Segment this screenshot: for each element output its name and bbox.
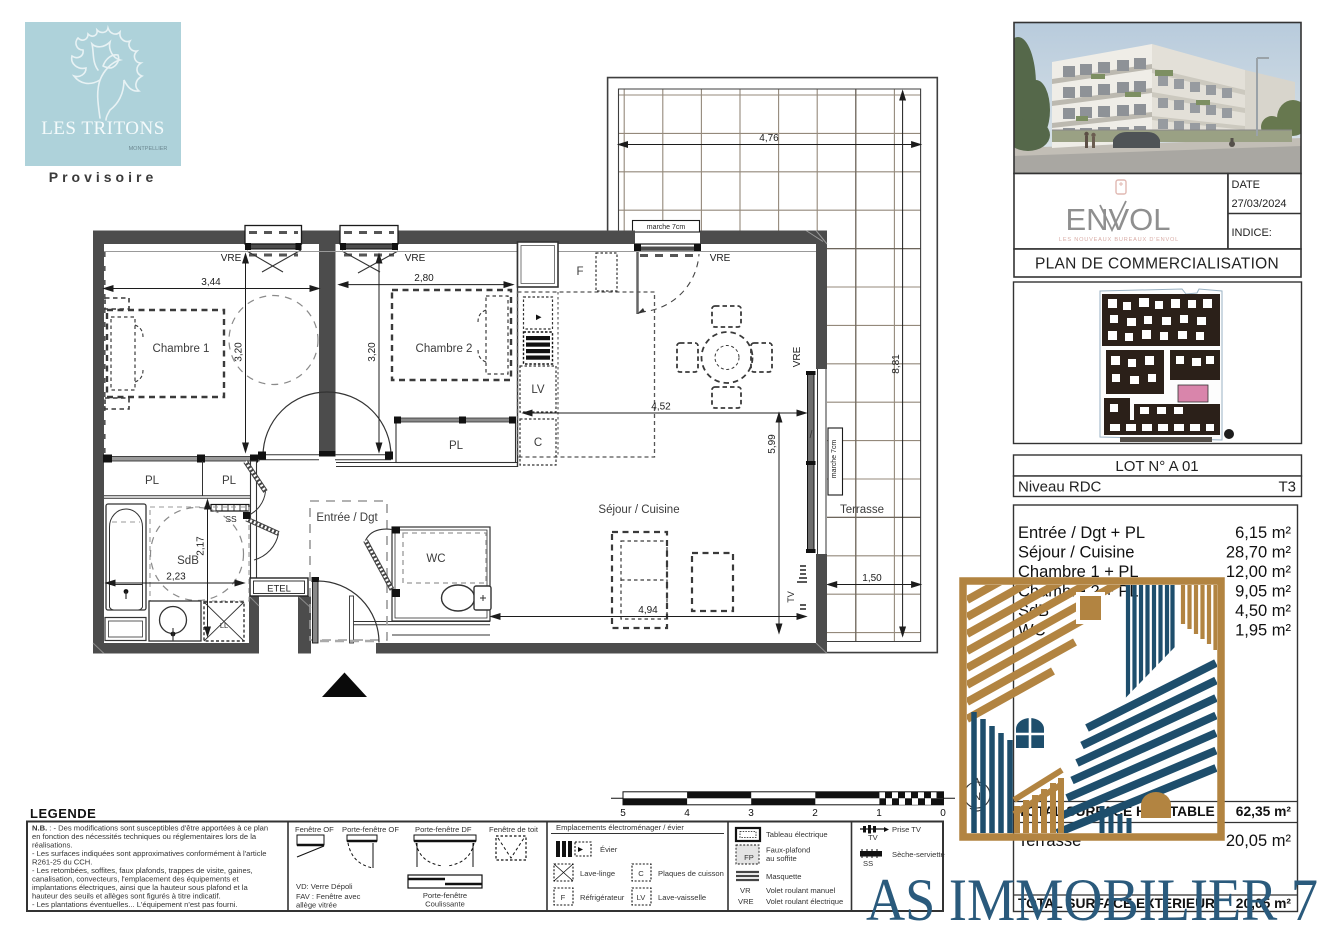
svg-text:3,44: 3,44	[201, 277, 221, 288]
svg-text:VD: Verre Dépoli: VD: Verre Dépoli	[296, 882, 353, 891]
svg-text:4,50 m²: 4,50 m²	[1235, 602, 1291, 620]
svg-text:C: C	[534, 437, 542, 449]
svg-text:VRE: VRE	[405, 253, 426, 264]
svg-text:Évier: Évier	[600, 845, 618, 854]
svg-text:2,17: 2,17	[196, 536, 207, 556]
svg-text:4,52: 4,52	[651, 402, 671, 413]
svg-text:Volet roulant manuel: Volet roulant manuel	[766, 886, 836, 895]
svg-text:27/03/2024: 27/03/2024	[1232, 198, 1287, 210]
svg-text:20,05 m²: 20,05 m²	[1226, 832, 1292, 850]
svg-text:0: 0	[940, 808, 946, 819]
svg-text:ETEL: ETEL	[267, 584, 291, 595]
svg-text:WC: WC	[426, 553, 445, 565]
svg-text:2,80: 2,80	[414, 273, 434, 284]
svg-text:1,95 m²: 1,95 m²	[1235, 622, 1291, 640]
svg-text:Fenêtre de toit: Fenêtre de toit	[489, 825, 539, 834]
svg-text:marche 7cm: marche 7cm	[647, 224, 686, 231]
svg-text:2: 2	[812, 808, 818, 819]
svg-text:Porte-fenêtre DF: Porte-fenêtre DF	[415, 825, 472, 834]
svg-text:Coulissante: Coulissante	[425, 900, 465, 909]
svg-text:9,05 m²: 9,05 m²	[1235, 583, 1291, 601]
svg-text:- Les plantations éventuelles.: - Les plantations éventuelles... L'équip…	[32, 900, 238, 909]
svg-text:F: F	[561, 893, 566, 902]
svg-text:Réfrigérateur: Réfrigérateur	[580, 893, 625, 902]
svg-text:VRE: VRE	[710, 253, 731, 264]
svg-text:VRE: VRE	[221, 253, 242, 264]
svg-text:SdB: SdB	[177, 555, 199, 567]
svg-text:2,23: 2,23	[166, 572, 186, 583]
svg-text:INDICE:: INDICE:	[1232, 227, 1272, 239]
svg-text:Séjour / Cuisine: Séjour / Cuisine	[1018, 544, 1134, 562]
svg-text:LV: LV	[637, 893, 647, 902]
svg-text:Prise TV: Prise TV	[892, 825, 922, 834]
svg-text:LOT N° A 01: LOT N° A 01	[1115, 458, 1198, 475]
svg-text:5: 5	[620, 808, 626, 819]
svg-text:au soffite: au soffite	[766, 854, 797, 863]
svg-text:Lave-vaisselle: Lave-vaisselle	[658, 893, 706, 902]
svg-text:marche 7cm: marche 7cm	[831, 440, 838, 479]
svg-text:4,94: 4,94	[638, 605, 658, 616]
svg-text:LL: LL	[220, 621, 228, 630]
svg-text:Provisoire: Provisoire	[49, 169, 157, 185]
svg-text:VRE: VRE	[738, 897, 754, 906]
svg-text:MONTPELLIER: MONTPELLIER	[129, 146, 168, 152]
svg-text:TV: TV	[868, 833, 879, 842]
svg-text:F: F	[576, 266, 583, 278]
svg-text:4,76: 4,76	[759, 133, 779, 144]
svg-text:12,00 m²: 12,00 m²	[1226, 563, 1292, 581]
svg-text:Emplacements électroménager /: Emplacements électroménager / évier	[556, 823, 684, 832]
svg-text:FP: FP	[744, 853, 754, 862]
svg-text:AS IMMOBILIER 7: AS IMMOBILIER 7	[866, 867, 1318, 933]
svg-text:28,70 m²: 28,70 m²	[1226, 544, 1292, 562]
svg-text:5,99: 5,99	[767, 434, 778, 454]
svg-text:Plaques de cuisson: Plaques de cuisson	[658, 869, 724, 878]
svg-text:4: 4	[684, 808, 690, 819]
svg-text:allège vitrée: allège vitrée	[296, 901, 337, 910]
svg-text:Sèche-serviette: Sèche-serviette	[892, 850, 945, 859]
svg-text:Porte-fenêtre OF: Porte-fenêtre OF	[342, 825, 399, 834]
svg-text:Volet roulant électrique: Volet roulant électrique	[766, 897, 843, 906]
svg-text:T3: T3	[1278, 479, 1296, 496]
svg-text:TV: TV	[786, 591, 796, 603]
svg-text:Chambre 2: Chambre 2	[416, 343, 473, 355]
svg-text:Masquette: Masquette	[766, 872, 801, 881]
svg-text:VR: VR	[740, 886, 751, 895]
svg-text:Niveau RDC: Niveau RDC	[1018, 479, 1102, 496]
svg-text:Entrée / Dgt + PL: Entrée / Dgt + PL	[1018, 524, 1145, 542]
svg-text:3,20: 3,20	[367, 342, 378, 362]
svg-text:1,50: 1,50	[862, 573, 882, 584]
svg-text:LV: LV	[531, 384, 545, 396]
svg-text:LES NOUVEAUX BUREAUX D'ENVOL: LES NOUVEAUX BUREAUX D'ENVOL	[1059, 237, 1179, 243]
svg-text:3: 3	[748, 808, 754, 819]
svg-text:C: C	[638, 869, 644, 878]
svg-text:8,81: 8,81	[891, 354, 902, 374]
svg-text:Terrasse: Terrasse	[840, 504, 884, 516]
svg-text:PL: PL	[222, 475, 237, 487]
svg-text:DATE: DATE	[1232, 179, 1261, 191]
svg-text:PLAN DE COMMERCIALISATION: PLAN DE COMMERCIALISATION	[1035, 256, 1279, 273]
svg-text:PL: PL	[145, 475, 160, 487]
svg-text:Entrée / Dgt: Entrée / Dgt	[316, 512, 378, 524]
svg-text:Tableau électrique: Tableau électrique	[766, 830, 828, 839]
svg-text:PL: PL	[449, 440, 464, 452]
svg-text:VRE: VRE	[792, 346, 803, 367]
svg-text:Lave-linge: Lave-linge	[580, 869, 615, 878]
svg-text:3,20: 3,20	[234, 342, 245, 362]
svg-text:Chambre 1: Chambre 1	[153, 343, 210, 355]
svg-text:LEGENDE: LEGENDE	[30, 806, 96, 821]
svg-text:Séjour / Cuisine: Séjour / Cuisine	[598, 504, 679, 516]
svg-text:6,15 m²: 6,15 m²	[1235, 524, 1291, 542]
svg-text:62,35 m²: 62,35 m²	[1236, 804, 1292, 819]
svg-text:Fenêtre OF: Fenêtre OF	[295, 825, 334, 834]
svg-text:1: 1	[876, 808, 882, 819]
svg-text:LES TRITONS: LES TRITONS	[41, 118, 165, 139]
